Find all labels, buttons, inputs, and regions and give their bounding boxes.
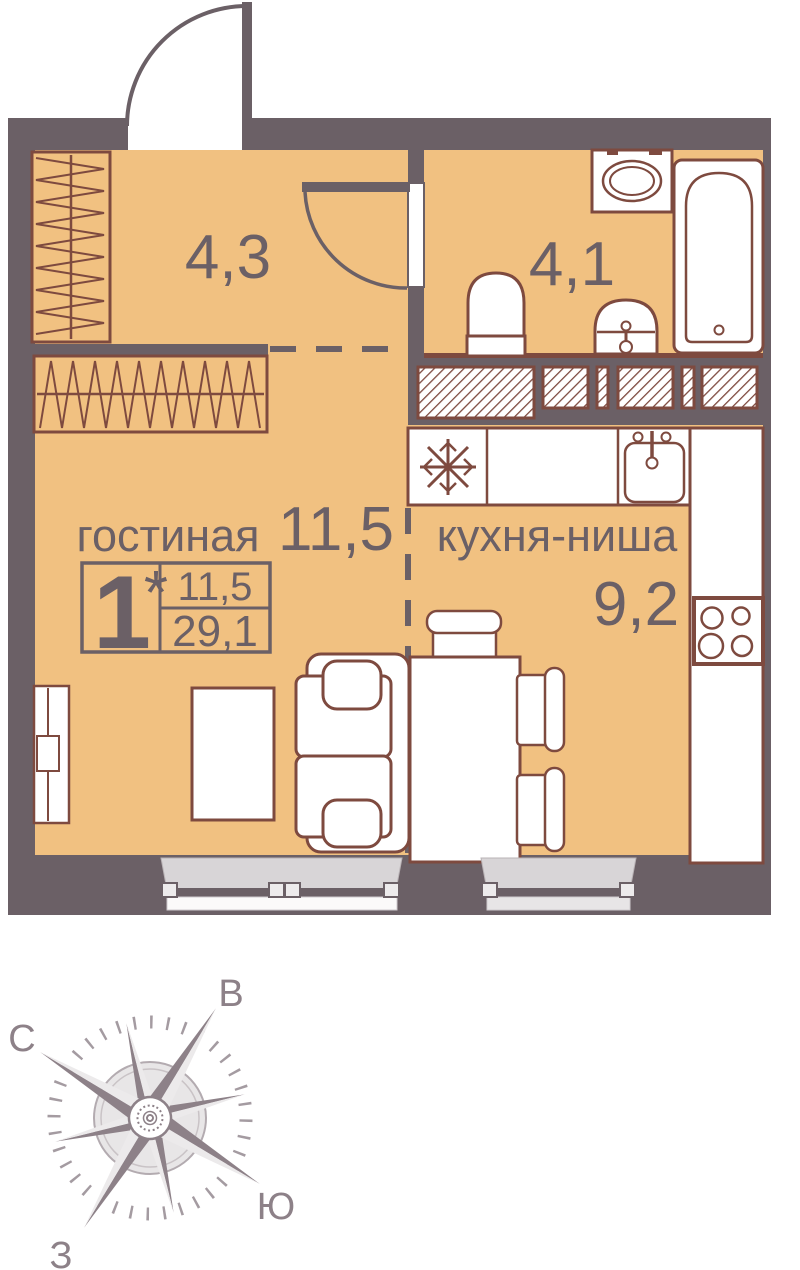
compass-south-label: Ю [257, 1186, 295, 1228]
washing-machine-icon [592, 150, 672, 212]
coffee-table [192, 688, 274, 820]
compass-east-label: В [218, 973, 243, 1015]
living-room-area-label: 11,5 [278, 495, 394, 564]
stamp-asterisk: * [144, 559, 168, 628]
dining-table [410, 657, 520, 862]
stamp-room-count: 1 [93, 555, 151, 671]
wardrobe-tall [32, 152, 110, 342]
tv-stand [34, 686, 69, 823]
kitchen-name-label: кухня-ниша [437, 510, 678, 561]
kitchen-area-label: 9,2 [593, 570, 679, 639]
stove-icon [694, 598, 763, 664]
dining-chair-right-1 [517, 668, 564, 751]
washbasin-icon [595, 300, 657, 354]
floorplan-canvas: 4,3 4,1 гостиная 11,5 кухня-ниша 9,2 1 *… [0, 0, 800, 1270]
bathroom-area-label: 4,1 [529, 230, 615, 299]
dining-chair-top [427, 611, 501, 659]
toilet-icon [467, 273, 525, 356]
bathtub-icon [674, 160, 763, 353]
hallway-area-label: 4,3 [185, 223, 271, 292]
snowflake-icon [420, 439, 476, 495]
window-living-room [161, 858, 402, 910]
sofa [296, 654, 409, 852]
wardrobe-wide [34, 356, 267, 432]
compass-north-label: С [8, 1018, 35, 1060]
window-kitchen [481, 858, 636, 910]
compass-west-label: З [50, 1235, 73, 1270]
living-room-name-label: гостиная [77, 510, 260, 561]
stamp-total-area: 29,1 [172, 607, 258, 656]
floorplan-page: 4,3 4,1 гостиная 11,5 кухня-ниша 9,2 1 *… [0, 0, 800, 1270]
entrance-door [127, 2, 252, 150]
wind-rose-icon: В С Ю З [0, 942, 326, 1270]
dining-chair-right-2 [517, 768, 564, 851]
stamp-living-area: 11,5 [178, 565, 253, 609]
